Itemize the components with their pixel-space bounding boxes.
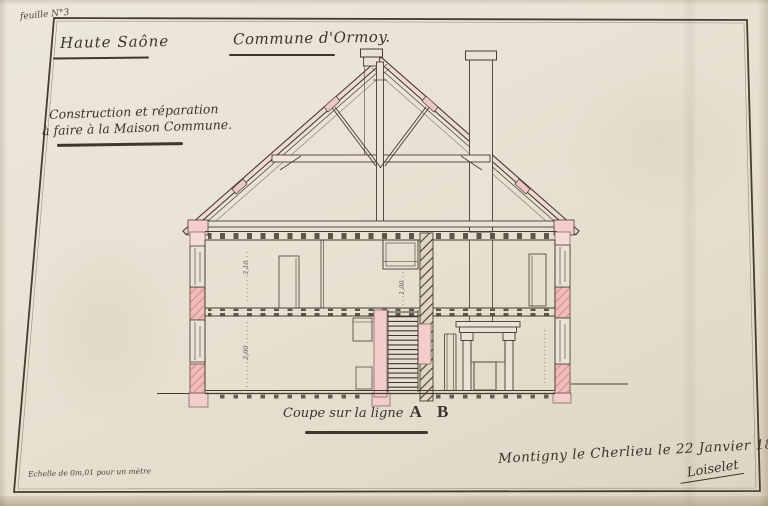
stair-landing-door: [418, 324, 431, 364]
caption-prefix: Coupe sur la ligne: [283, 406, 403, 421]
dimension-label-lower-room: 3,00: [242, 346, 250, 360]
chimney-right: [466, 51, 497, 322]
caption-underline: [305, 431, 428, 434]
tie-beam: [190, 221, 572, 227]
section-letters: A B: [409, 402, 454, 421]
section-caption: Coupe sur la ligneA B: [283, 402, 454, 422]
upper-door-left: [279, 256, 299, 308]
chimney-flue-section: [418, 233, 433, 401]
stair-newel: [374, 310, 387, 397]
wall-right: [555, 232, 570, 393]
wall-left: [190, 232, 205, 393]
wall-cupboard: [353, 318, 372, 389]
upper-door-right: [529, 254, 546, 306]
ground-door: [445, 334, 457, 390]
commune-title: Commune d'Ormoy.: [233, 28, 391, 49]
stair-window: [383, 240, 418, 269]
attic-floor: [205, 232, 557, 241]
scanned-architectural-drawing: feuille N°3 Haute Saône Commune d'Ormoy.…: [0, 0, 768, 506]
roof-truss: [188, 62, 574, 235]
dimension-label-upper-room: 3,10: [242, 261, 250, 275]
dimension-lines: [247, 252, 545, 387]
dimension-label-stair: 1,90: [398, 281, 406, 295]
staircase: [374, 310, 418, 397]
fireplace: [456, 322, 520, 391]
partition-wall: [321, 240, 324, 308]
department-title: Haute Saône: [60, 32, 169, 52]
commune-underline: [229, 54, 335, 56]
firebox: [474, 362, 496, 390]
upper-storey: [279, 240, 546, 308]
king-post: [377, 62, 384, 221]
